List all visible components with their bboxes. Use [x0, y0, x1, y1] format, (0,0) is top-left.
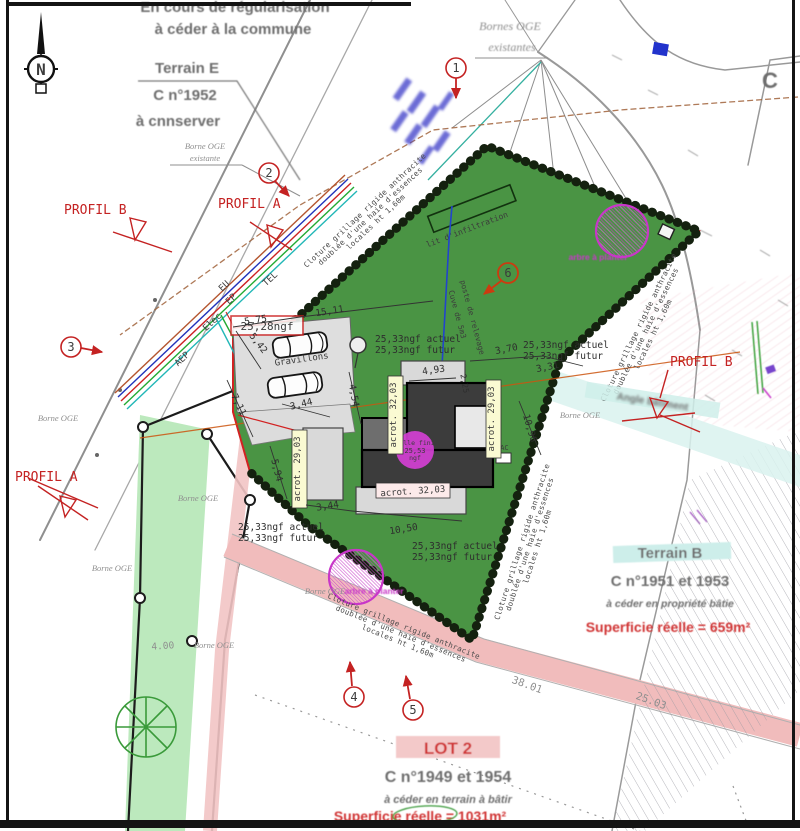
dim-label: 4.00: [151, 640, 175, 653]
terrain-b-name: Terrain B: [638, 545, 703, 562]
marker-number: 5: [409, 703, 416, 717]
marker-3: 3: [61, 337, 102, 357]
tree-label: arbre à planter: [344, 586, 404, 596]
blue-survey-stamps: [390, 77, 454, 164]
lot-2-note: à céder en terrain à bâtir: [384, 794, 512, 806]
marker-number: 1: [452, 61, 459, 75]
top-annotations: En cours de régularisation à céder à la …: [136, 0, 778, 180]
marker-number: 4: [350, 690, 357, 704]
zone-c-letter: C: [762, 68, 778, 93]
marker-4: 4: [344, 662, 364, 707]
lot-2-name: LOT 2: [424, 739, 472, 758]
terrain-e-parcel: C n°1952: [153, 87, 217, 104]
terrain-b-note: à céder en propriété bâtie: [606, 598, 734, 610]
borne-label: Borne OGE: [560, 410, 601, 420]
dalle-line3: ngf: [409, 454, 421, 462]
north-arrow-icon: N: [24, 12, 58, 93]
borne-label: Borne OGE: [194, 640, 235, 650]
borne-label: Borne OGE: [305, 586, 346, 596]
terrain-e-note: à cnnserver: [136, 113, 220, 130]
borne-label: existante: [190, 153, 220, 163]
ngf-actuel: 25,33ngf actuel: [375, 334, 461, 345]
borne-label: Borne OGE: [185, 141, 226, 151]
ngf-actuel: 25,33ngf actuel: [412, 541, 498, 552]
utility-label-aep: AEP: [173, 350, 192, 369]
tree-label: arbre à planter: [568, 252, 628, 262]
site-plan: lit d'infiltration Cuve de 5m3 poste de …: [0, 0, 800, 831]
acrot-label: acrot. 29,03: [293, 436, 303, 501]
marker-number: 3: [67, 340, 74, 354]
lot-2-block: LOT 2 C n°1949 et 1954 à céder en terrai…: [334, 736, 513, 826]
acrot-label: acrot. 32,03: [389, 382, 399, 447]
marker-number: 2: [265, 166, 272, 180]
ngf-futur: 25,33ngf futur: [375, 345, 455, 356]
profil-a-label-bottomleft: PROFIL A: [15, 470, 78, 485]
acrot-label: acrot. 29,03: [487, 386, 497, 451]
ngf-actuel: 25,33ngf actuel: [238, 522, 324, 533]
borne-blue-square: [652, 42, 669, 56]
terrain-b-area: Superficie réelle = 659m²: [586, 619, 751, 635]
lot-2-cadastre: C n°1949 et 1954: [385, 769, 512, 786]
ngf-futur: 25,33ngf futur: [412, 552, 492, 563]
regularisation-line2: à céder à la commune: [155, 21, 312, 38]
terrain-b-block: Terrain B C n°1951 et 1953 à céder en pr…: [586, 542, 751, 635]
borne-label: Borne OGE: [178, 493, 219, 503]
borne-label: Bornes OGE: [479, 19, 541, 33]
profil-b-label-topleft: PROFIL B: [64, 203, 127, 218]
borne-label: existantes: [488, 40, 536, 54]
ngf-actuel: 25,33ngf actuel: [523, 340, 609, 351]
marker-6-number: 6: [504, 266, 511, 280]
profil-b-label-right: PROFIL B: [670, 355, 733, 370]
borne-label: Borne OGE: [92, 563, 133, 573]
ngf-futur: 25,33ngf futur: [238, 533, 318, 544]
terrain-e-title: Terrain E: [155, 60, 219, 77]
profil-a-label-top: PROFIL A: [218, 197, 281, 212]
terrain-b-cadastre: C n°1951 et 1953: [611, 573, 730, 590]
north-letter: N: [36, 60, 46, 79]
ngf-futur: 25,33ngf futur: [523, 351, 603, 362]
marker-5: 5: [403, 676, 423, 720]
borne-label: Borne OGE: [38, 413, 79, 423]
existing-tree: [116, 697, 176, 757]
site-plan-drawing: lit d'infiltration Cuve de 5m3 poste de …: [0, 0, 800, 831]
marker-2: 2: [259, 163, 289, 196]
